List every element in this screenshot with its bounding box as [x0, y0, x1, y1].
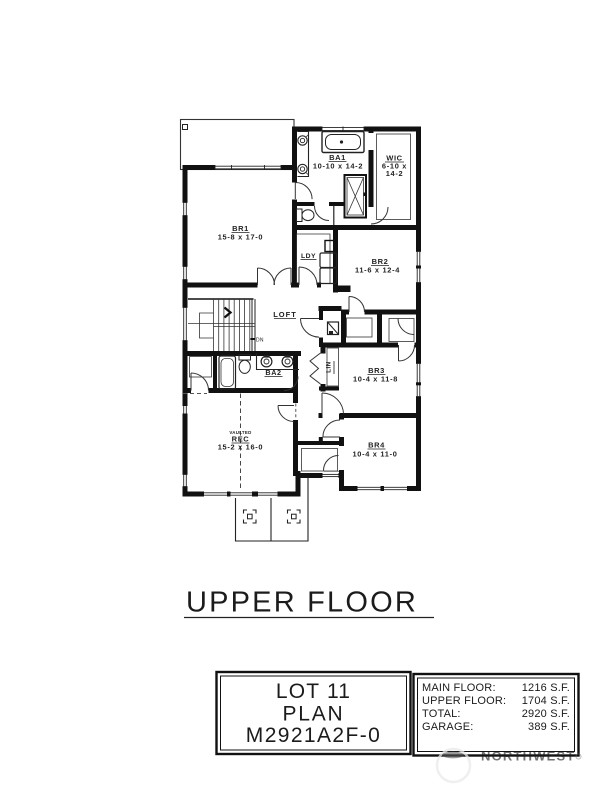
- svg-text:M2921A2F-0: M2921A2F-0: [246, 724, 381, 747]
- svg-text:15-8 x 17-0: 15-8 x 17-0: [218, 233, 264, 242]
- svg-text:10-10 x 14-2: 10-10 x 14-2: [313, 162, 363, 171]
- svg-text:2920 S.F.: 2920 S.F.: [522, 708, 570, 720]
- svg-text:GARAGE:: GARAGE:: [422, 721, 474, 733]
- svg-text:389 S.F.: 389 S.F.: [528, 721, 570, 733]
- svg-text:LDY: LDY: [301, 253, 316, 260]
- svg-text:1216 S.F.: 1216 S.F.: [522, 682, 570, 694]
- svg-text:BR4: BR4: [368, 441, 385, 450]
- svg-text:LIN: LIN: [326, 361, 333, 372]
- svg-text:PLAN: PLAN: [282, 703, 344, 726]
- svg-text:UPPER FLOOR:: UPPER FLOOR:: [422, 695, 506, 707]
- svg-text:UPPER FLOOR: UPPER FLOOR: [186, 587, 418, 619]
- svg-text:10-4 x 11-8: 10-4 x 11-8: [353, 375, 398, 384]
- svg-text:LOFT: LOFT: [273, 310, 297, 319]
- svg-text:NORTHWEST: NORTHWEST: [481, 749, 576, 764]
- svg-text:15-2 x 16-0: 15-2 x 16-0: [218, 443, 264, 452]
- svg-text:DN: DN: [256, 337, 264, 343]
- svg-text:LOT 11: LOT 11: [276, 680, 351, 703]
- svg-text:TOTAL:: TOTAL:: [422, 708, 461, 720]
- svg-text:1704 S.F.: 1704 S.F.: [522, 695, 570, 707]
- svg-text:10-4 x 11-0: 10-4 x 11-0: [352, 450, 397, 459]
- svg-text:14-2: 14-2: [386, 169, 404, 178]
- svg-text:MAIN FLOOR:: MAIN FLOOR:: [422, 682, 496, 694]
- svg-text:11-6 x 12-4: 11-6 x 12-4: [355, 266, 400, 275]
- svg-text:BA2: BA2: [265, 368, 281, 377]
